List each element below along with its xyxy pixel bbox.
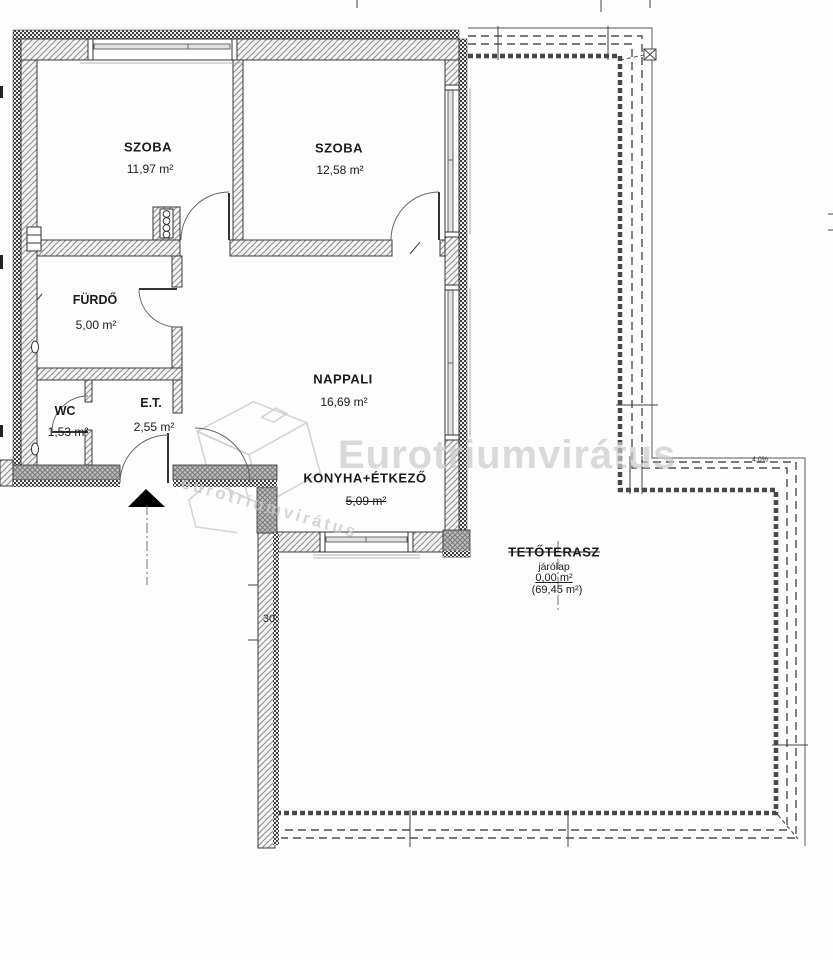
terrace-gross-area-label: (69,45 m²) (532, 584, 583, 596)
room-area-szoba2: 12,58 m² (316, 163, 363, 177)
room-label-wc: WC (55, 404, 76, 418)
terrace-area-label: 0,00 m² (535, 572, 572, 584)
watermark-text: Eurotriumvirátus (338, 433, 676, 478)
floor-edge-band (13, 465, 470, 845)
room-label-furdo: FÜRDŐ (73, 293, 117, 307)
chimney-block (153, 207, 180, 240)
room-label-szoba2: SZOBA (315, 141, 363, 156)
terrace-label: TETŐTERASZ (508, 545, 600, 560)
entrance-arrow (128, 489, 165, 507)
room-area-konyha: 5,09 m² (346, 494, 387, 508)
room-label-szoba1: SZOBA (124, 140, 172, 155)
room-area-nappali: 16,69 m² (320, 395, 367, 409)
room-label-nappali: NAPPALI (313, 372, 373, 387)
wall-dimension-30: 30 (263, 613, 275, 625)
room-area-furdo: 5,00 m² (76, 318, 117, 332)
terrace-slope-note: 4,0% (752, 457, 768, 464)
room-area-eloter: 2,55 m² (134, 420, 175, 434)
scan-artifacts (0, 86, 3, 437)
room-label-eloter: E.T. (140, 396, 162, 410)
floorplan-page: SZOBA 11,97 m² SZOBA 12,58 m² FÜRDŐ 5,00… (0, 0, 833, 960)
room-area-szoba1: 11,97 m² (127, 162, 173, 176)
room-area-wc: 1,53 m² (48, 425, 89, 439)
